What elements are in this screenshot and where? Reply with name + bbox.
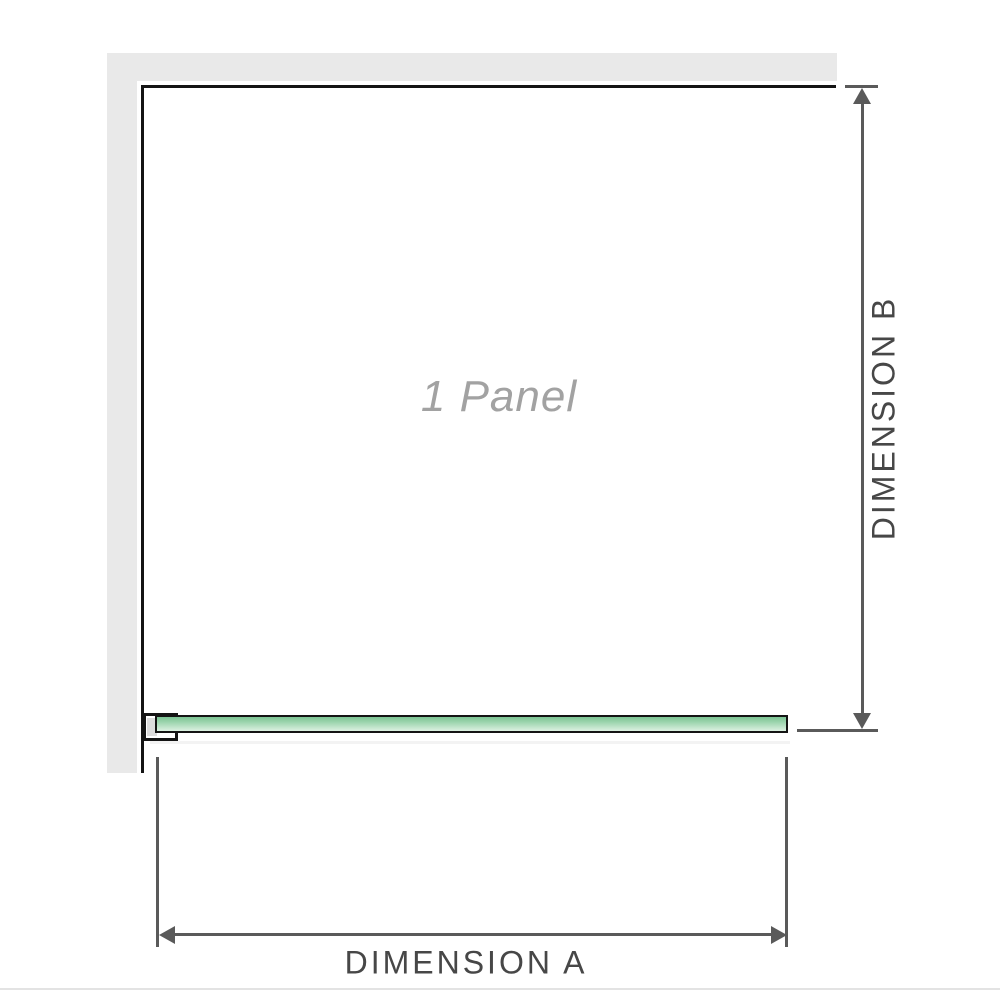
dimension-b-line [861, 97, 864, 717]
arrowhead-right-icon [771, 926, 787, 944]
glass-panel-bar [155, 715, 788, 733]
dimension-b-bottom-tick [797, 729, 878, 732]
dimension-a-label: DIMENSION A [345, 945, 588, 982]
arrowhead-left-icon [159, 926, 175, 944]
panel-count-label: 1 Panel [421, 372, 577, 422]
panel-outline-top-edge [141, 85, 836, 88]
wall-left-bar [107, 53, 137, 773]
glass-shadow [150, 741, 790, 744]
arrowhead-up-icon [853, 88, 871, 104]
dimension-a-right-tick [785, 757, 788, 947]
dimension-b-label: DIMENSION B [866, 296, 903, 541]
panel-outline-left-edge [141, 85, 144, 773]
bottom-divider-line [0, 988, 1000, 990]
dimension-diagram-canvas: 1 Panel DIMENSION B DIMENSION A [0, 0, 1000, 1000]
arrowhead-down-icon [853, 713, 871, 729]
wall-top-bar [107, 53, 837, 81]
dimension-a-line [173, 933, 773, 936]
dimension-a-left-tick [156, 757, 159, 947]
